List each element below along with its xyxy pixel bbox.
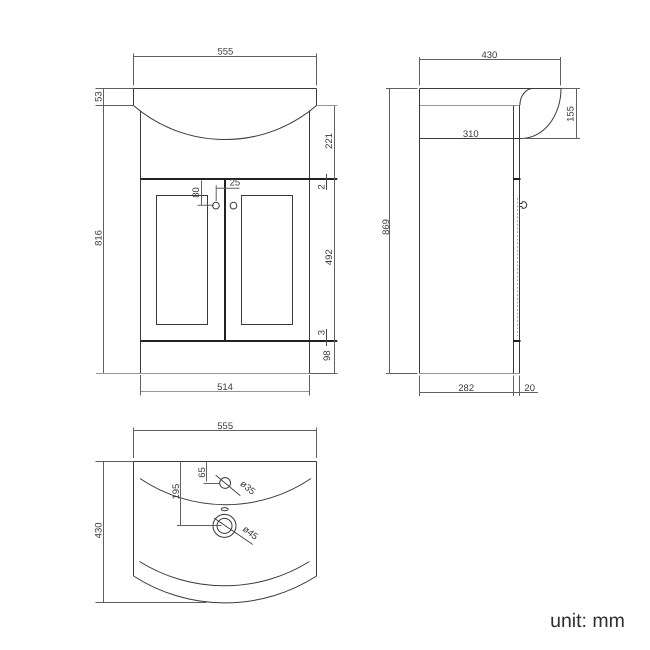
svg-text:555: 555: [217, 421, 233, 432]
svg-text:282: 282: [458, 383, 474, 394]
svg-text:869: 869: [381, 219, 392, 235]
svg-text:430: 430: [94, 522, 105, 538]
svg-text:20: 20: [524, 383, 535, 394]
svg-text:80: 80: [191, 187, 202, 198]
svg-text:555: 555: [217, 47, 233, 58]
svg-text:2: 2: [316, 184, 327, 189]
svg-text:430: 430: [481, 50, 497, 61]
svg-text:25: 25: [230, 178, 241, 189]
svg-text:514: 514: [217, 382, 233, 393]
svg-text:816: 816: [93, 230, 104, 246]
svg-text:98: 98: [322, 350, 333, 361]
svg-text:155: 155: [566, 106, 577, 122]
svg-text:3: 3: [317, 330, 328, 335]
svg-text:310: 310: [463, 129, 479, 140]
svg-text:221: 221: [324, 133, 335, 149]
svg-text:492: 492: [324, 249, 335, 265]
svg-text:53: 53: [93, 91, 104, 102]
svg-text:unit: mm: unit: mm: [550, 610, 625, 632]
svg-text:65: 65: [197, 467, 208, 478]
svg-text:195: 195: [171, 484, 182, 500]
